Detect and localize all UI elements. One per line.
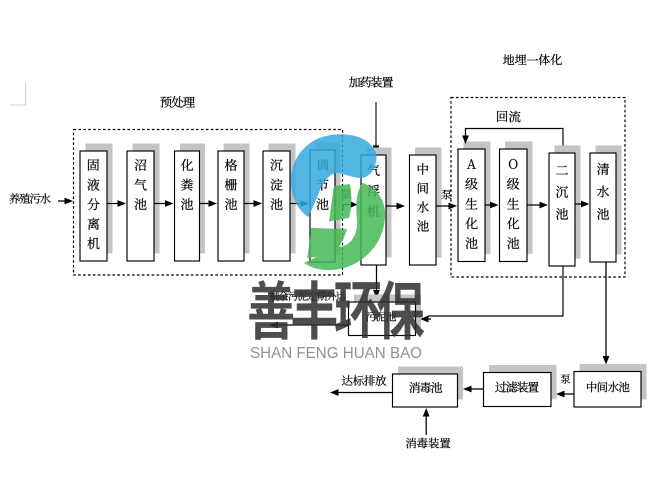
svg-text:SHAN FENG HUAN BAO: SHAN FENG HUAN BAO <box>250 345 422 362</box>
